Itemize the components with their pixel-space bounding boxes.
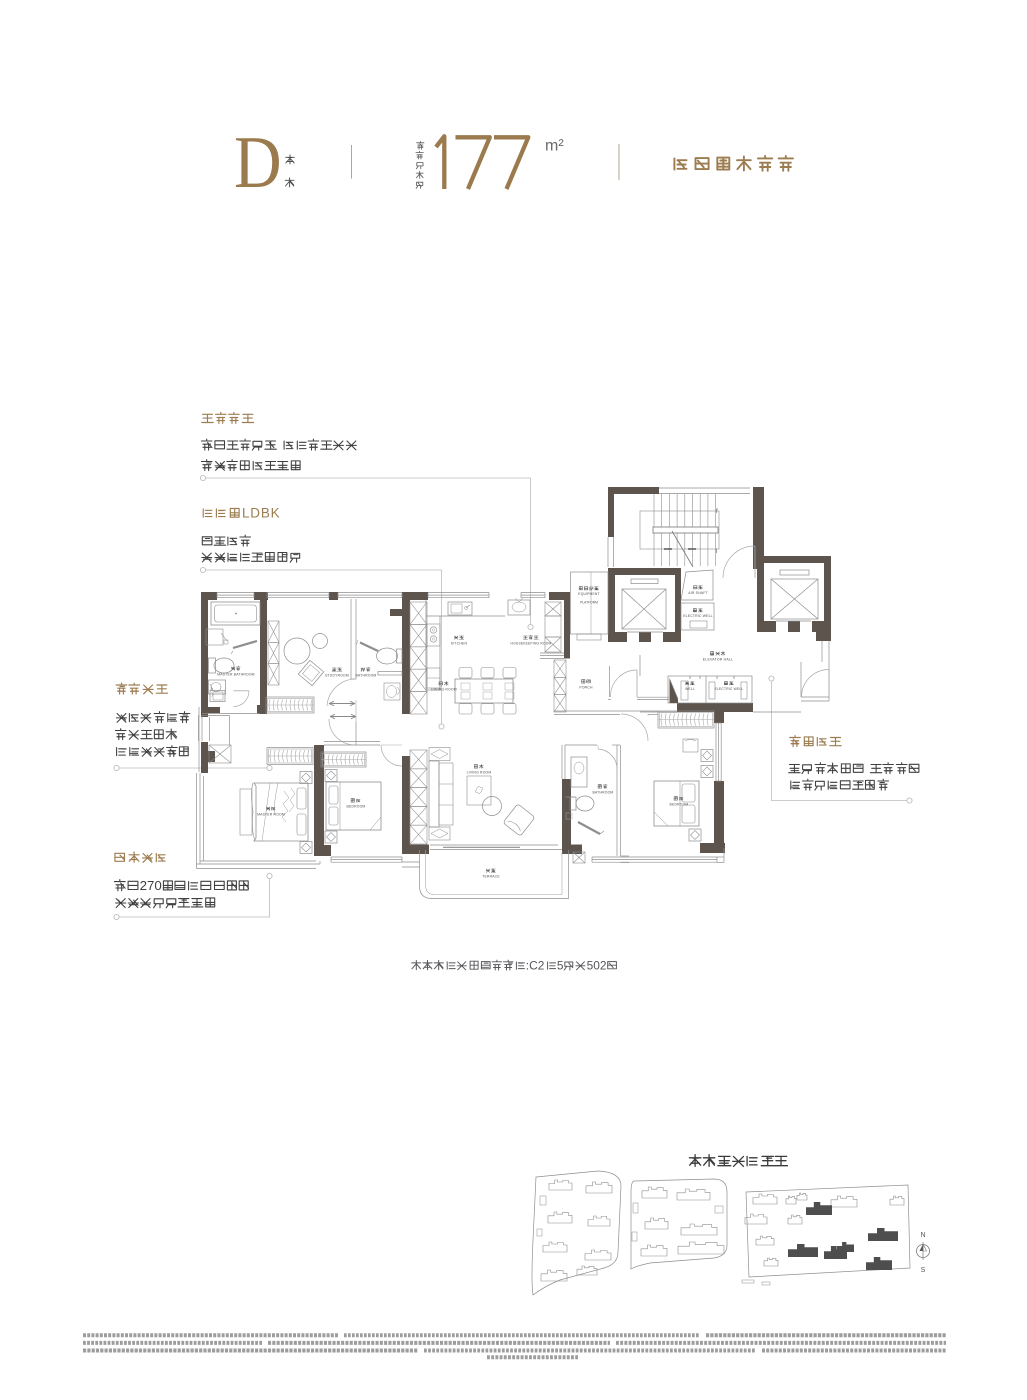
svg-text:STUDYROOM: STUDYROOM (325, 673, 349, 677)
svg-text:S: S (921, 1267, 926, 1274)
svg-text:ELECTRIC WELL: ELECTRIC WELL (683, 614, 713, 618)
svg-text:WELL: WELL (685, 687, 695, 691)
svg-text:LDBK: LDBK (242, 506, 280, 521)
svg-text:HOUSEKEEPING ROOM: HOUSEKEEPING ROOM (511, 641, 552, 645)
svg-text:BATHROOM: BATHROOM (593, 790, 614, 794)
svg-text:MASTER ROOM: MASTER ROOM (257, 812, 285, 816)
svg-text:DINING ROOM: DINING ROOM (431, 687, 457, 691)
svg-text:l: l (716, 549, 717, 555)
svg-text:KITCHEN: KITCHEN (451, 641, 468, 645)
svg-text:D: D (234, 123, 282, 204)
svg-text:TERRACE: TERRACE (482, 874, 500, 878)
svg-text:PORCH: PORCH (579, 685, 593, 689)
svg-text:EQUIPMENT: EQUIPMENT (578, 592, 599, 596)
svg-text::C2: :C2 (526, 958, 545, 972)
svg-text:270: 270 (140, 878, 162, 893)
svg-text:ELEVATOR HALL: ELEVATOR HALL (703, 658, 733, 662)
svg-text:5: 5 (557, 958, 564, 972)
svg-text:N: N (920, 1232, 925, 1239)
svg-text:LIVING ROOM: LIVING ROOM (467, 770, 492, 774)
svg-text:PLATFORM: PLATFORM (580, 601, 598, 605)
svg-text:ELECTRIC WELL: ELECTRIC WELL (715, 687, 744, 691)
svg-text:MASTER BATHROOM: MASTER BATHROOM (217, 672, 254, 676)
svg-text:BEDROOM: BEDROOM (670, 802, 689, 806)
svg-text:502: 502 (587, 958, 607, 972)
svg-text:m²: m² (545, 138, 564, 155)
svg-text:AIR SHAFT: AIR SHAFT (688, 591, 708, 595)
svg-text:BATHROOM: BATHROOM (356, 673, 377, 677)
svg-text:BEDROOM: BEDROOM (347, 804, 366, 808)
